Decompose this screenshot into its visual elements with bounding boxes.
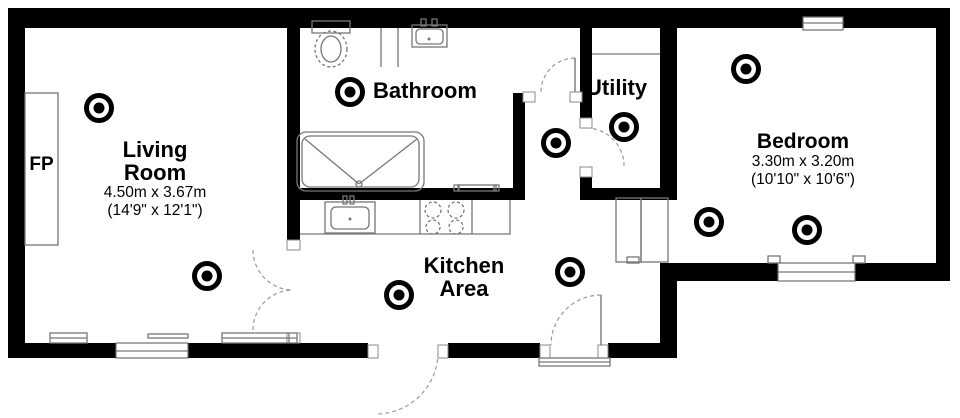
bathroom-label: Bathroom [373, 79, 493, 102]
wall-bedroom-bottom-a [660, 263, 778, 281]
front-door-arc [376, 352, 438, 414]
room-dims-metric: 4.50m x 3.67m [70, 184, 240, 202]
wall-bedroom-bottom-b [855, 263, 950, 281]
radiator-living-left [50, 333, 87, 343]
detector-icon [795, 218, 820, 243]
radiator-living-right [222, 333, 297, 343]
wall-divider-upper [660, 28, 677, 200]
room-dims-metric: 3.30m x 3.20m [718, 153, 888, 171]
room-name-line: Kitchen [404, 254, 524, 277]
jamb [287, 240, 300, 250]
detector-icon [338, 80, 363, 105]
detector-icon [697, 210, 722, 235]
detector-icon [195, 264, 220, 289]
room-dims-imperial: (14'9" x 12'1") [70, 202, 240, 220]
jamb [580, 118, 592, 128]
room-name-line: Area [404, 277, 524, 300]
jamb [570, 92, 582, 102]
kitchen-door-arc [551, 295, 601, 345]
wall-utility-left-upper [580, 28, 592, 118]
jamb [523, 92, 535, 102]
floorplan-canvas: Living Room 4.50m x 3.67m (14'9" x 12'1"… [0, 0, 960, 418]
pipe-duct [381, 28, 398, 67]
wall-divider-lower [660, 263, 677, 358]
detector-icon [734, 57, 759, 82]
kitchen-label: Kitchen Area [404, 254, 524, 300]
jamb [598, 345, 608, 358]
doors [253, 58, 624, 414]
jamb [580, 167, 592, 177]
room-name-line: Room [70, 161, 240, 184]
wall-right [936, 8, 950, 281]
living-double-door-arc-top [253, 250, 293, 290]
wall-left [8, 8, 25, 358]
jamb [438, 345, 448, 358]
wall-bathroom-left [287, 28, 300, 240]
living-room-label: Living Room 4.50m x 3.67m (14'9" x 12'1"… [70, 138, 240, 219]
bathtub [297, 132, 424, 191]
kitchen-door-threshold [539, 358, 610, 366]
utility-label: Utility [586, 76, 666, 99]
wall-bottom-a [25, 343, 116, 358]
detector-icon [558, 260, 583, 285]
wall-bathroom-bottom [287, 188, 523, 200]
hob [425, 202, 464, 234]
room-name-line: Bedroom [718, 130, 888, 153]
wall-bottom-b [188, 343, 368, 358]
bedroom-label: Bedroom 3.30m x 3.20m (10'10" x 10'6") [718, 130, 888, 188]
window-living [116, 334, 188, 358]
room-name-line: Living [70, 138, 240, 161]
detector-icon [544, 131, 569, 156]
window-bedroom [768, 256, 865, 281]
bedroom-sliding-door-panels [616, 198, 668, 263]
room-dims-imperial: (10'10" x 10'6") [718, 171, 888, 189]
wall-bathroom-right [513, 93, 525, 200]
jamb [368, 345, 378, 358]
detector-icon [87, 96, 112, 121]
living-double-door-arc-bottom [253, 290, 293, 330]
detector-icon [612, 115, 637, 140]
jamb [540, 345, 550, 358]
kitchen-sink [325, 196, 375, 233]
wall-bottom-c [448, 343, 540, 358]
vent-bedroom-top [803, 17, 843, 30]
bathroom-door-arc [541, 58, 575, 92]
fireplace-label: FP [25, 154, 58, 176]
